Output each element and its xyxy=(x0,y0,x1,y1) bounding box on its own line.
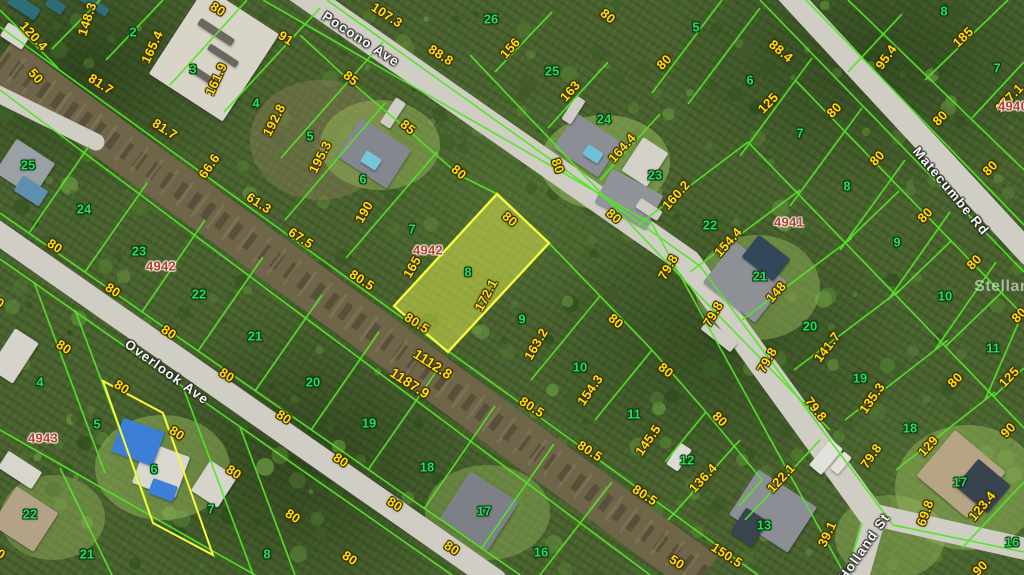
lot-number-label: 7 xyxy=(408,222,415,237)
lot-number-label: 5 xyxy=(306,129,313,144)
dimension-label: 80 xyxy=(112,377,133,398)
dimension-label: 172.1 xyxy=(471,276,500,313)
street-label: Overlook Ave xyxy=(122,336,212,407)
mls-aerial-parcel-map: 120.4148.35081.781.7165.480161.991192.81… xyxy=(0,0,1024,575)
map-labels-layer: 120.4148.35081.781.7165.480161.991192.81… xyxy=(0,0,1024,575)
lot-number-label: 22 xyxy=(703,218,717,233)
lot-number-label: 6 xyxy=(746,73,753,88)
dimension-label: 80 xyxy=(655,359,676,380)
lot-number-label: 11 xyxy=(627,407,641,422)
lot-number-label: 7 xyxy=(207,502,214,517)
dimension-label: 164.4 xyxy=(605,130,639,165)
block-number-label: 4940 xyxy=(998,99,1024,114)
dimension-label: 80 xyxy=(979,157,1000,178)
lot-number-label: 16 xyxy=(1005,535,1019,550)
dimension-label: 61.3 xyxy=(244,189,274,216)
dimension-label: 195.3 xyxy=(306,138,335,175)
dimension-label: 80 xyxy=(159,322,180,343)
lot-number-label: 11 xyxy=(986,341,1000,356)
dimension-label: 80 xyxy=(963,251,984,272)
lot-number-label: 2 xyxy=(129,25,136,40)
dimension-label: 80 xyxy=(866,147,887,168)
lot-number-label: 19 xyxy=(853,371,867,386)
lot-number-label: 8 xyxy=(843,179,850,194)
dimension-label: 156 xyxy=(497,35,523,62)
lot-number-label: 10 xyxy=(938,289,952,304)
dimension-label: 79.8 xyxy=(857,441,884,471)
dimension-label: 67.5 xyxy=(286,224,316,251)
dimension-label: 80 xyxy=(167,423,188,444)
block-number-label: 4942 xyxy=(146,259,176,274)
dimension-label: 88.4 xyxy=(766,37,796,66)
dimension-label: 80.5 xyxy=(402,309,432,336)
lot-number-label: 20 xyxy=(306,375,320,390)
dimension-label: 192.8 xyxy=(260,101,289,138)
dimension-label: 150.5 xyxy=(709,539,746,570)
lot-number-label: 22 xyxy=(23,507,37,522)
dimension-label: 79.8 xyxy=(754,345,780,375)
dimension-label: 80.5 xyxy=(630,481,660,508)
lot-number-label: 26 xyxy=(484,12,498,27)
lot-number-label: 9 xyxy=(893,235,900,250)
dimension-label: 80 xyxy=(274,407,295,428)
dimension-label: 165 xyxy=(400,253,424,280)
lot-number-label: 22 xyxy=(192,287,206,302)
lot-number-label: 23 xyxy=(648,168,662,183)
dimension-label: 79.8 xyxy=(655,252,681,282)
lot-number-label: 8 xyxy=(940,4,947,19)
dimension-label: 123.4 xyxy=(965,488,998,524)
lot-number-label: 9 xyxy=(518,312,525,327)
lot-number-label: 21 xyxy=(753,269,767,284)
lot-number-label: 7 xyxy=(993,61,1000,76)
dimension-label: 95.4 xyxy=(872,42,899,72)
lot-number-label: 23 xyxy=(132,244,146,259)
dimension-label: 80 xyxy=(45,236,66,257)
dimension-label: 80 xyxy=(54,337,75,358)
dimension-label: 80 xyxy=(217,365,238,386)
dimension-label: 79.8 xyxy=(802,394,830,424)
dimension-label: 50 xyxy=(25,65,46,86)
block-number-label: 4942 xyxy=(413,243,443,258)
lot-number-label: 25 xyxy=(21,158,35,173)
lot-number-label: 4 xyxy=(36,375,43,390)
street-label: Matecumbe Rd xyxy=(910,144,992,238)
dimension-label: 80 xyxy=(208,0,229,19)
dimension-label: 163.2 xyxy=(521,326,551,363)
dimension-label: 81.7 xyxy=(86,70,116,97)
dimension-label: 80 xyxy=(0,291,7,312)
lot-number-label: 17 xyxy=(477,504,491,519)
dimension-label: 125 xyxy=(996,364,1022,391)
lot-number-label: 18 xyxy=(903,421,917,436)
dimension-label: 80.5 xyxy=(347,266,377,293)
lot-number-label: 21 xyxy=(248,329,262,344)
dimension-label: 163 xyxy=(557,78,583,105)
dimension-label: 161.9 xyxy=(202,60,230,97)
dimension-label: 80 xyxy=(548,156,567,175)
lot-number-label: 24 xyxy=(597,112,611,127)
lot-number-label: 10 xyxy=(573,360,587,375)
lot-number-label: 7 xyxy=(796,126,803,141)
dimension-label: 145.5 xyxy=(632,422,664,458)
dimension-label: 80 xyxy=(103,280,124,301)
dimension-label: 80 xyxy=(0,542,8,563)
block-number-label: 4941 xyxy=(774,215,804,230)
dimension-label: 80 xyxy=(605,310,626,331)
dimension-label: 190 xyxy=(352,198,376,225)
dimension-label: 185 xyxy=(950,24,977,50)
lot-number-label: 6 xyxy=(359,172,366,187)
dimension-label: 129 xyxy=(915,433,941,460)
lot-number-label: 17 xyxy=(953,475,967,490)
watermark: StellarMLS xyxy=(974,278,1024,296)
lot-number-label: 8 xyxy=(464,265,471,280)
dimension-label: 80 xyxy=(709,408,730,429)
dimension-label: 79.8 xyxy=(700,299,726,329)
street-label: Holland St xyxy=(835,510,892,575)
lot-number-label: 5 xyxy=(93,417,100,432)
dimension-label: 125 xyxy=(755,90,781,117)
lot-number-label: 18 xyxy=(420,460,434,475)
dimension-label: 90 xyxy=(997,419,1018,440)
dimension-label: 80 xyxy=(499,208,520,229)
dimension-label: 80 xyxy=(603,205,624,226)
dimension-label: 80 xyxy=(448,161,469,182)
dimension-label: 90 xyxy=(969,557,990,575)
dimension-label: 160.2 xyxy=(659,177,693,212)
dimension-label: 80 xyxy=(929,107,950,128)
dimension-label: 80 xyxy=(283,506,304,527)
dimension-label: 165.4 xyxy=(138,28,166,65)
dimension-label: 39.1 xyxy=(815,519,840,549)
lot-number-label: 19 xyxy=(362,416,376,431)
lot-number-label: 3 xyxy=(189,62,196,77)
dimension-label: 85 xyxy=(397,116,418,137)
lot-number-label: 6 xyxy=(150,462,157,477)
dimension-label: 91 xyxy=(276,28,297,49)
dimension-label: 80 xyxy=(653,51,674,72)
dimension-label: 80 xyxy=(224,462,245,483)
dimension-label: 154.3 xyxy=(574,372,606,408)
dimension-label: 80 xyxy=(385,494,406,515)
dimension-label: 50 xyxy=(667,552,688,573)
dimension-label: 122.1 xyxy=(764,460,798,495)
lot-number-label: 24 xyxy=(77,202,91,217)
dimension-label: 80.5 xyxy=(575,437,605,464)
lot-number-label: 16 xyxy=(534,545,548,560)
dimension-label: 80 xyxy=(944,369,965,390)
dimension-label: 107.3 xyxy=(369,0,406,31)
block-number-label: 4943 xyxy=(28,431,58,446)
lot-number-label: 25 xyxy=(545,64,559,79)
dimension-label: 69.8 xyxy=(913,498,936,528)
dimension-label: 120.4 xyxy=(17,18,51,53)
lot-number-label: 21 xyxy=(80,547,94,562)
dimension-label: 80 xyxy=(331,450,352,471)
lot-number-label: 20 xyxy=(803,319,817,334)
dimension-label: 85 xyxy=(340,67,361,88)
dimension-label: 81.7 xyxy=(150,115,180,142)
dimension-label: 141.7 xyxy=(811,329,844,365)
lot-number-label: 8 xyxy=(263,547,270,562)
lot-number-label: 5 xyxy=(692,20,699,35)
dimension-label: 80 xyxy=(442,538,463,559)
dimension-label: 66.6 xyxy=(195,151,222,181)
lot-number-label: 4 xyxy=(252,96,259,111)
lot-number-label: 13 xyxy=(757,518,771,533)
dimension-label: 80 xyxy=(1008,304,1024,325)
dimension-label: 1112.8 xyxy=(411,346,456,383)
dimension-label: 80 xyxy=(597,5,618,26)
dimension-label: 80 xyxy=(340,548,361,569)
dimension-label: 80 xyxy=(914,204,935,225)
dimension-label: 80 xyxy=(823,99,844,120)
lot-number-label: 12 xyxy=(680,453,694,468)
dimension-label: 1187.9 xyxy=(387,364,432,401)
dimension-label: 88.8 xyxy=(426,41,456,68)
dimension-label: 148.3 xyxy=(75,0,100,37)
dimension-label: 80.5 xyxy=(517,393,547,420)
